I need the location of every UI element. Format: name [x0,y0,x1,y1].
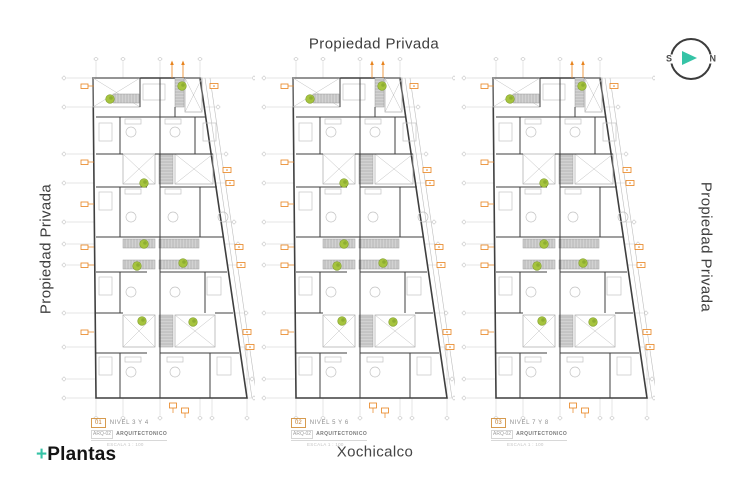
level-tag-icon [281,330,288,335]
floor-plan-drawing-3 [455,57,655,447]
level-tag-icon [81,330,88,335]
label-propiedad-privada-top: Propiedad Privada [309,36,439,53]
compass-north-label: N [708,55,719,64]
compass-south-label: S [664,55,674,64]
plan-sheet-code: ARQ-02 [491,430,513,439]
level-tag-icon [582,408,589,413]
plan-number-badge: 02 [291,418,306,428]
level-tag-icon [281,202,288,207]
floor-plan-svg [455,57,655,447]
plan-sheet-code: ARQ-02 [91,430,113,439]
plan-sheet-type: ARQUITECTONICO [116,432,167,437]
floor-plan-svg [255,57,455,447]
level-tag-icon [182,408,189,413]
plan-number-badge: 01 [91,418,106,428]
north-arrow-tag-icon [570,61,574,66]
north-arrow-tag-icon [370,61,374,66]
level-tag-icon [481,263,488,268]
drawing-sheet: Propiedad Privada Propiedad Privada Prop… [0,0,749,500]
level-tag-icon [81,84,88,89]
logo-plantas: +Plantas [36,444,116,466]
level-tag-icon [281,263,288,268]
plan-sheet-code: ARQ-02 [291,430,313,439]
level-tag-icon [281,245,288,250]
level-tag-icon [81,160,88,165]
floor-plan-svg [55,57,255,447]
north-arrow-tag-icon [381,61,385,66]
north-compass: S N [670,38,712,80]
north-arrow-tag-icon [581,61,585,66]
plan-sheet-type: ARQUITECTONICO [316,432,367,437]
plan-scale-label: ESCALA 1 : 100 [507,443,567,448]
level-tag-icon [481,245,488,250]
floor-plan-nivel-7-8: 03 NIVEL 7 Y 8 ARQ-02 ARQUITECTONICO ESC… [455,57,655,447]
label-propiedad-privada-right: Propiedad Privada [698,182,715,312]
plan-level-label: NIVEL 3 Y 4 [110,420,149,426]
level-tag-icon [570,403,577,408]
label-propiedad-privada-left: Propiedad Privada [38,184,55,314]
level-tag-icon [81,202,88,207]
logo-plus-icon: + [36,444,47,465]
level-tag-icon [481,160,488,165]
logo-wordmark: Plantas [47,444,116,465]
floor-plan-nivel-3-4: 01 NIVEL 3 Y 4 ARQ-02 ARQUITECTONICO ESC… [55,57,255,447]
level-tag-icon [170,403,177,408]
level-tag-icon [281,160,288,165]
floor-plan-drawing-2 [255,57,455,447]
level-tag-icon [382,408,389,413]
label-xochicalco: Xochicalco [337,444,414,461]
level-tag-icon [481,202,488,207]
level-tag-icon [481,84,488,89]
plan-title-block-3: 03 NIVEL 7 Y 8 ARQ-02 ARQUITECTONICO ESC… [491,418,567,447]
plan-level-label: NIVEL 5 Y 6 [310,420,349,426]
floor-plan-drawing-1 [55,57,255,447]
plan-number-badge: 03 [491,418,506,428]
level-tag-icon [281,84,288,89]
north-arrow-tag-icon [181,61,185,66]
floor-plan-nivel-5-6: 02 NIVEL 5 Y 6 ARQ-02 ARQUITECTONICO ESC… [255,57,455,447]
level-tag-icon [81,245,88,250]
north-arrow-tag-icon [170,61,174,66]
level-tag-icon [81,263,88,268]
level-tag-icon [481,330,488,335]
plan-sheet-type: ARQUITECTONICO [516,432,567,437]
plan-level-label: NIVEL 7 Y 8 [510,420,549,426]
compass-needle-icon [670,38,712,80]
plan-title-block-1: 01 NIVEL 3 Y 4 ARQ-02 ARQUITECTONICO ESC… [91,418,167,447]
level-tag-icon [370,403,377,408]
